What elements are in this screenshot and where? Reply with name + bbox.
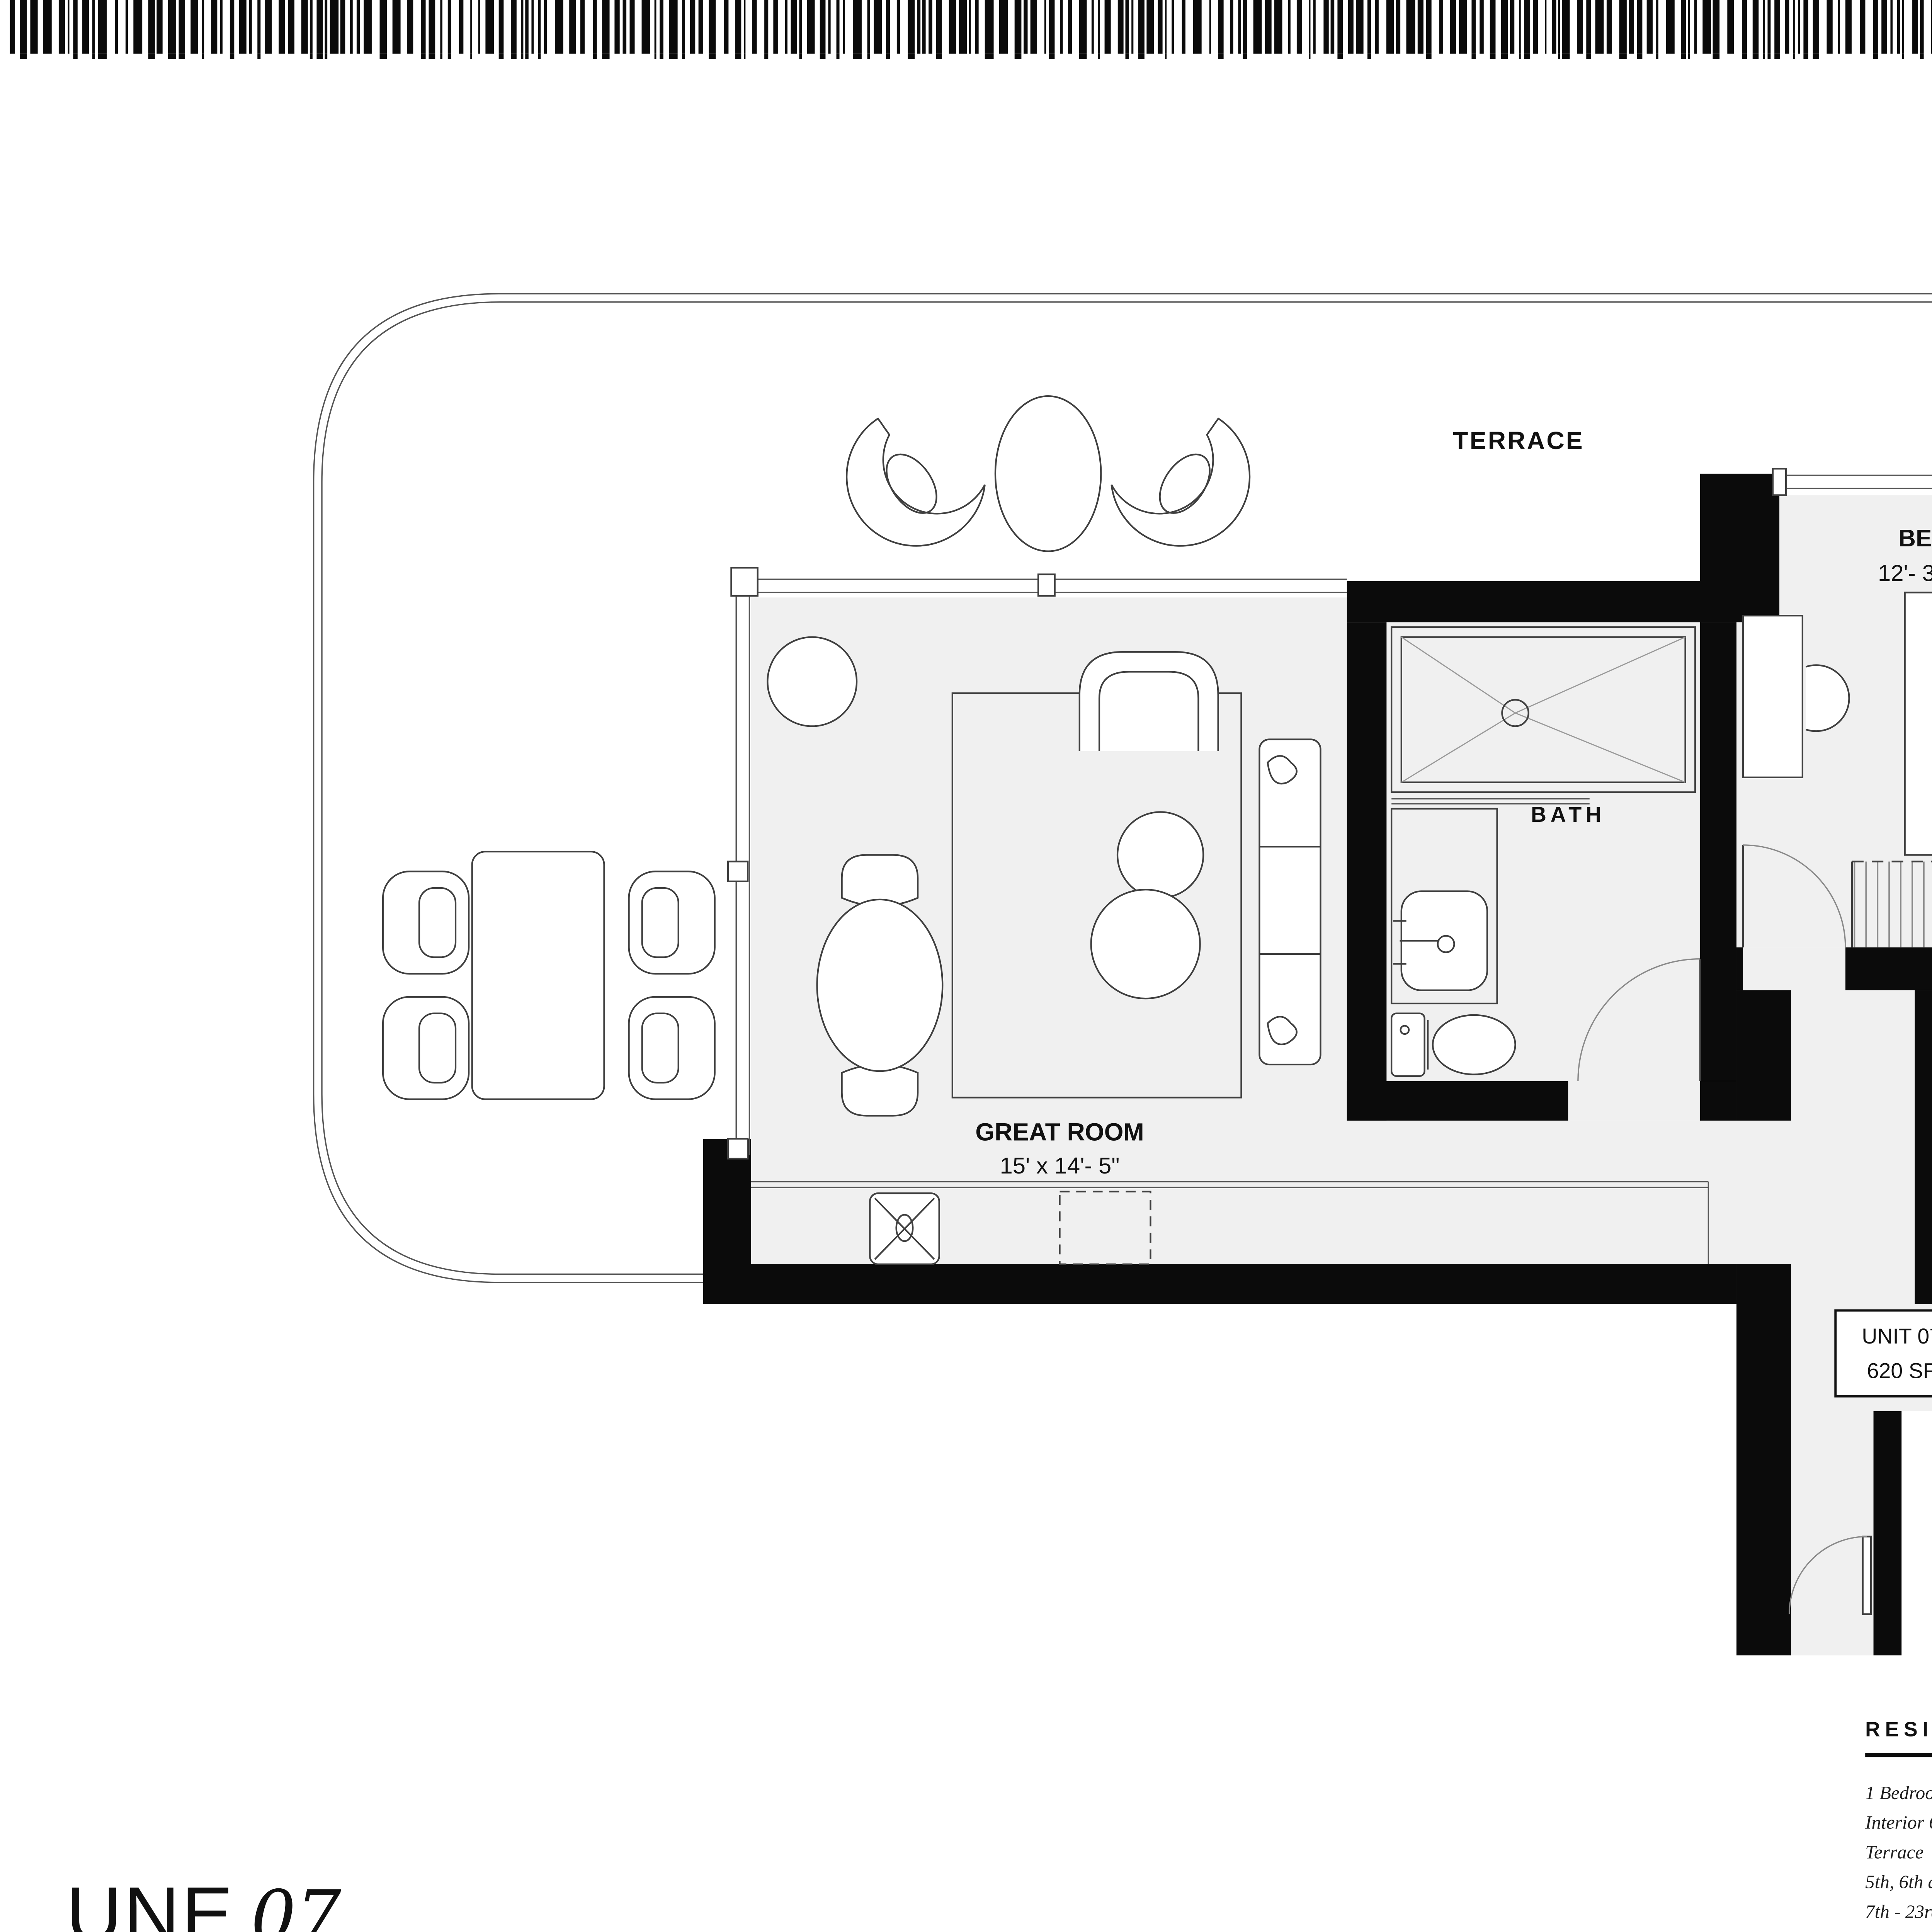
- kitchen-sink: [870, 1193, 939, 1264]
- unit-tag: UNIT 07 620 SF: [1835, 1310, 1932, 1396]
- detail-line-5: 7th - 23rd Floors 375 SF / 35 M2: [1865, 1901, 1932, 1922]
- sofa: [1259, 740, 1320, 1065]
- window-corner-mullion: [731, 568, 757, 596]
- detail-line-3: Terrace: [1865, 1842, 1923, 1863]
- terrace-dining-set: [383, 852, 715, 1099]
- window-mullion: [1038, 574, 1055, 596]
- unit-tag-line2: 620 SF: [1867, 1359, 1932, 1383]
- bed: [1905, 578, 1932, 871]
- logo-une: UNE: [66, 1871, 235, 1932]
- bath-label: BATH: [1531, 803, 1605, 827]
- residence-title: RESIDENCE 07: [1865, 1718, 1932, 1741]
- interior-dining-table: [817, 900, 943, 1071]
- brand-logo: UNE 07: [66, 1871, 341, 1932]
- unit-tag-line1: UNIT 07: [1862, 1324, 1932, 1348]
- window-mullion: [728, 862, 748, 881]
- toilet: [1391, 1014, 1515, 1076]
- round-side-table: [767, 637, 857, 726]
- detail-line-1: 1 Bedroom, 1 Bathroom: [1865, 1782, 1932, 1803]
- footer-rule: [1865, 1753, 1932, 1757]
- ottoman-large: [1091, 889, 1200, 998]
- logo-number: 07: [251, 1876, 341, 1932]
- detail-line-2: Interior 620 SF / 58 M2: [1865, 1812, 1932, 1833]
- terrace-label: TERRACE: [1453, 427, 1584, 454]
- barcode-strip: [10, 0, 1932, 59]
- armchair: [1080, 652, 1218, 751]
- footer: RESIDENCE 07 SOUTH WEST 1 Bedroom, 1 Bat…: [66, 1718, 1932, 1932]
- great-room-dims: 15' x 14'- 5": [1000, 1153, 1120, 1179]
- bedroom-label: BEDROOM: [1898, 525, 1932, 552]
- bedroom-closet: [1852, 862, 1932, 947]
- window-mullion: [728, 1139, 748, 1158]
- ottoman-small: [1117, 812, 1203, 898]
- great-room-label: GREAT ROOM: [975, 1118, 1144, 1146]
- terrace-lounge-chair-right: [1098, 390, 1277, 573]
- window-mullion: [1773, 469, 1786, 495]
- terrace-lounge-chair-left: [820, 390, 998, 573]
- floorplan-sheet: N: [0, 0, 1932, 1932]
- terrace-dining-table: [472, 852, 604, 1099]
- detail-line-4: 5th, 6th and 24th Floors 425 SF / 40 M2: [1865, 1871, 1932, 1892]
- bedroom-dims: 12'- 3" x 12'- 11": [1878, 560, 1932, 586]
- terrace-side-table: [995, 396, 1101, 551]
